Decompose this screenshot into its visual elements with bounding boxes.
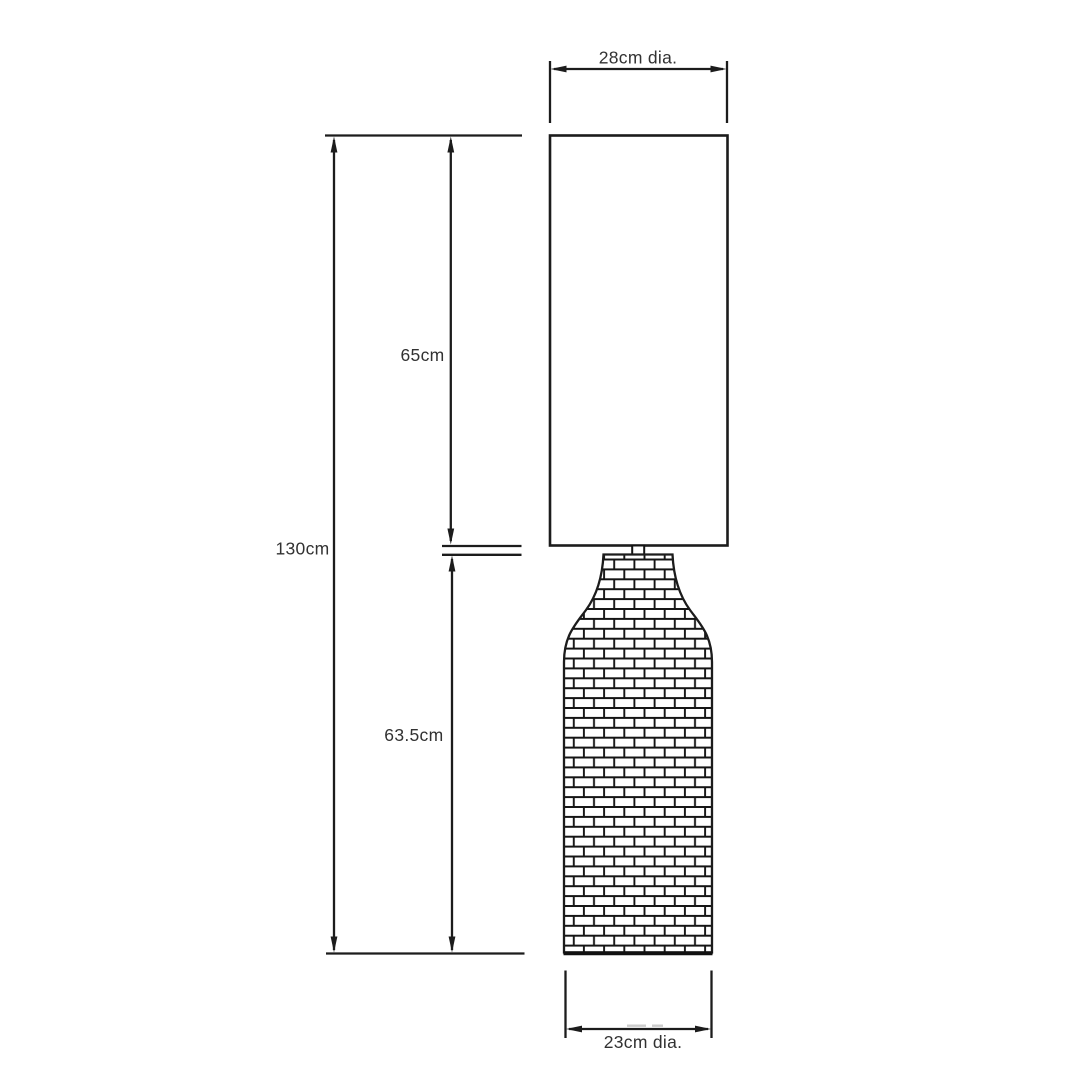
svg-text:65cm: 65cm	[401, 345, 445, 365]
svg-text:28cm dia.: 28cm dia.	[599, 48, 678, 68]
svg-text:23cm dia.: 23cm dia.	[604, 1032, 683, 1052]
svg-text:130cm: 130cm	[275, 539, 329, 559]
svg-text:63.5cm: 63.5cm	[384, 725, 443, 745]
